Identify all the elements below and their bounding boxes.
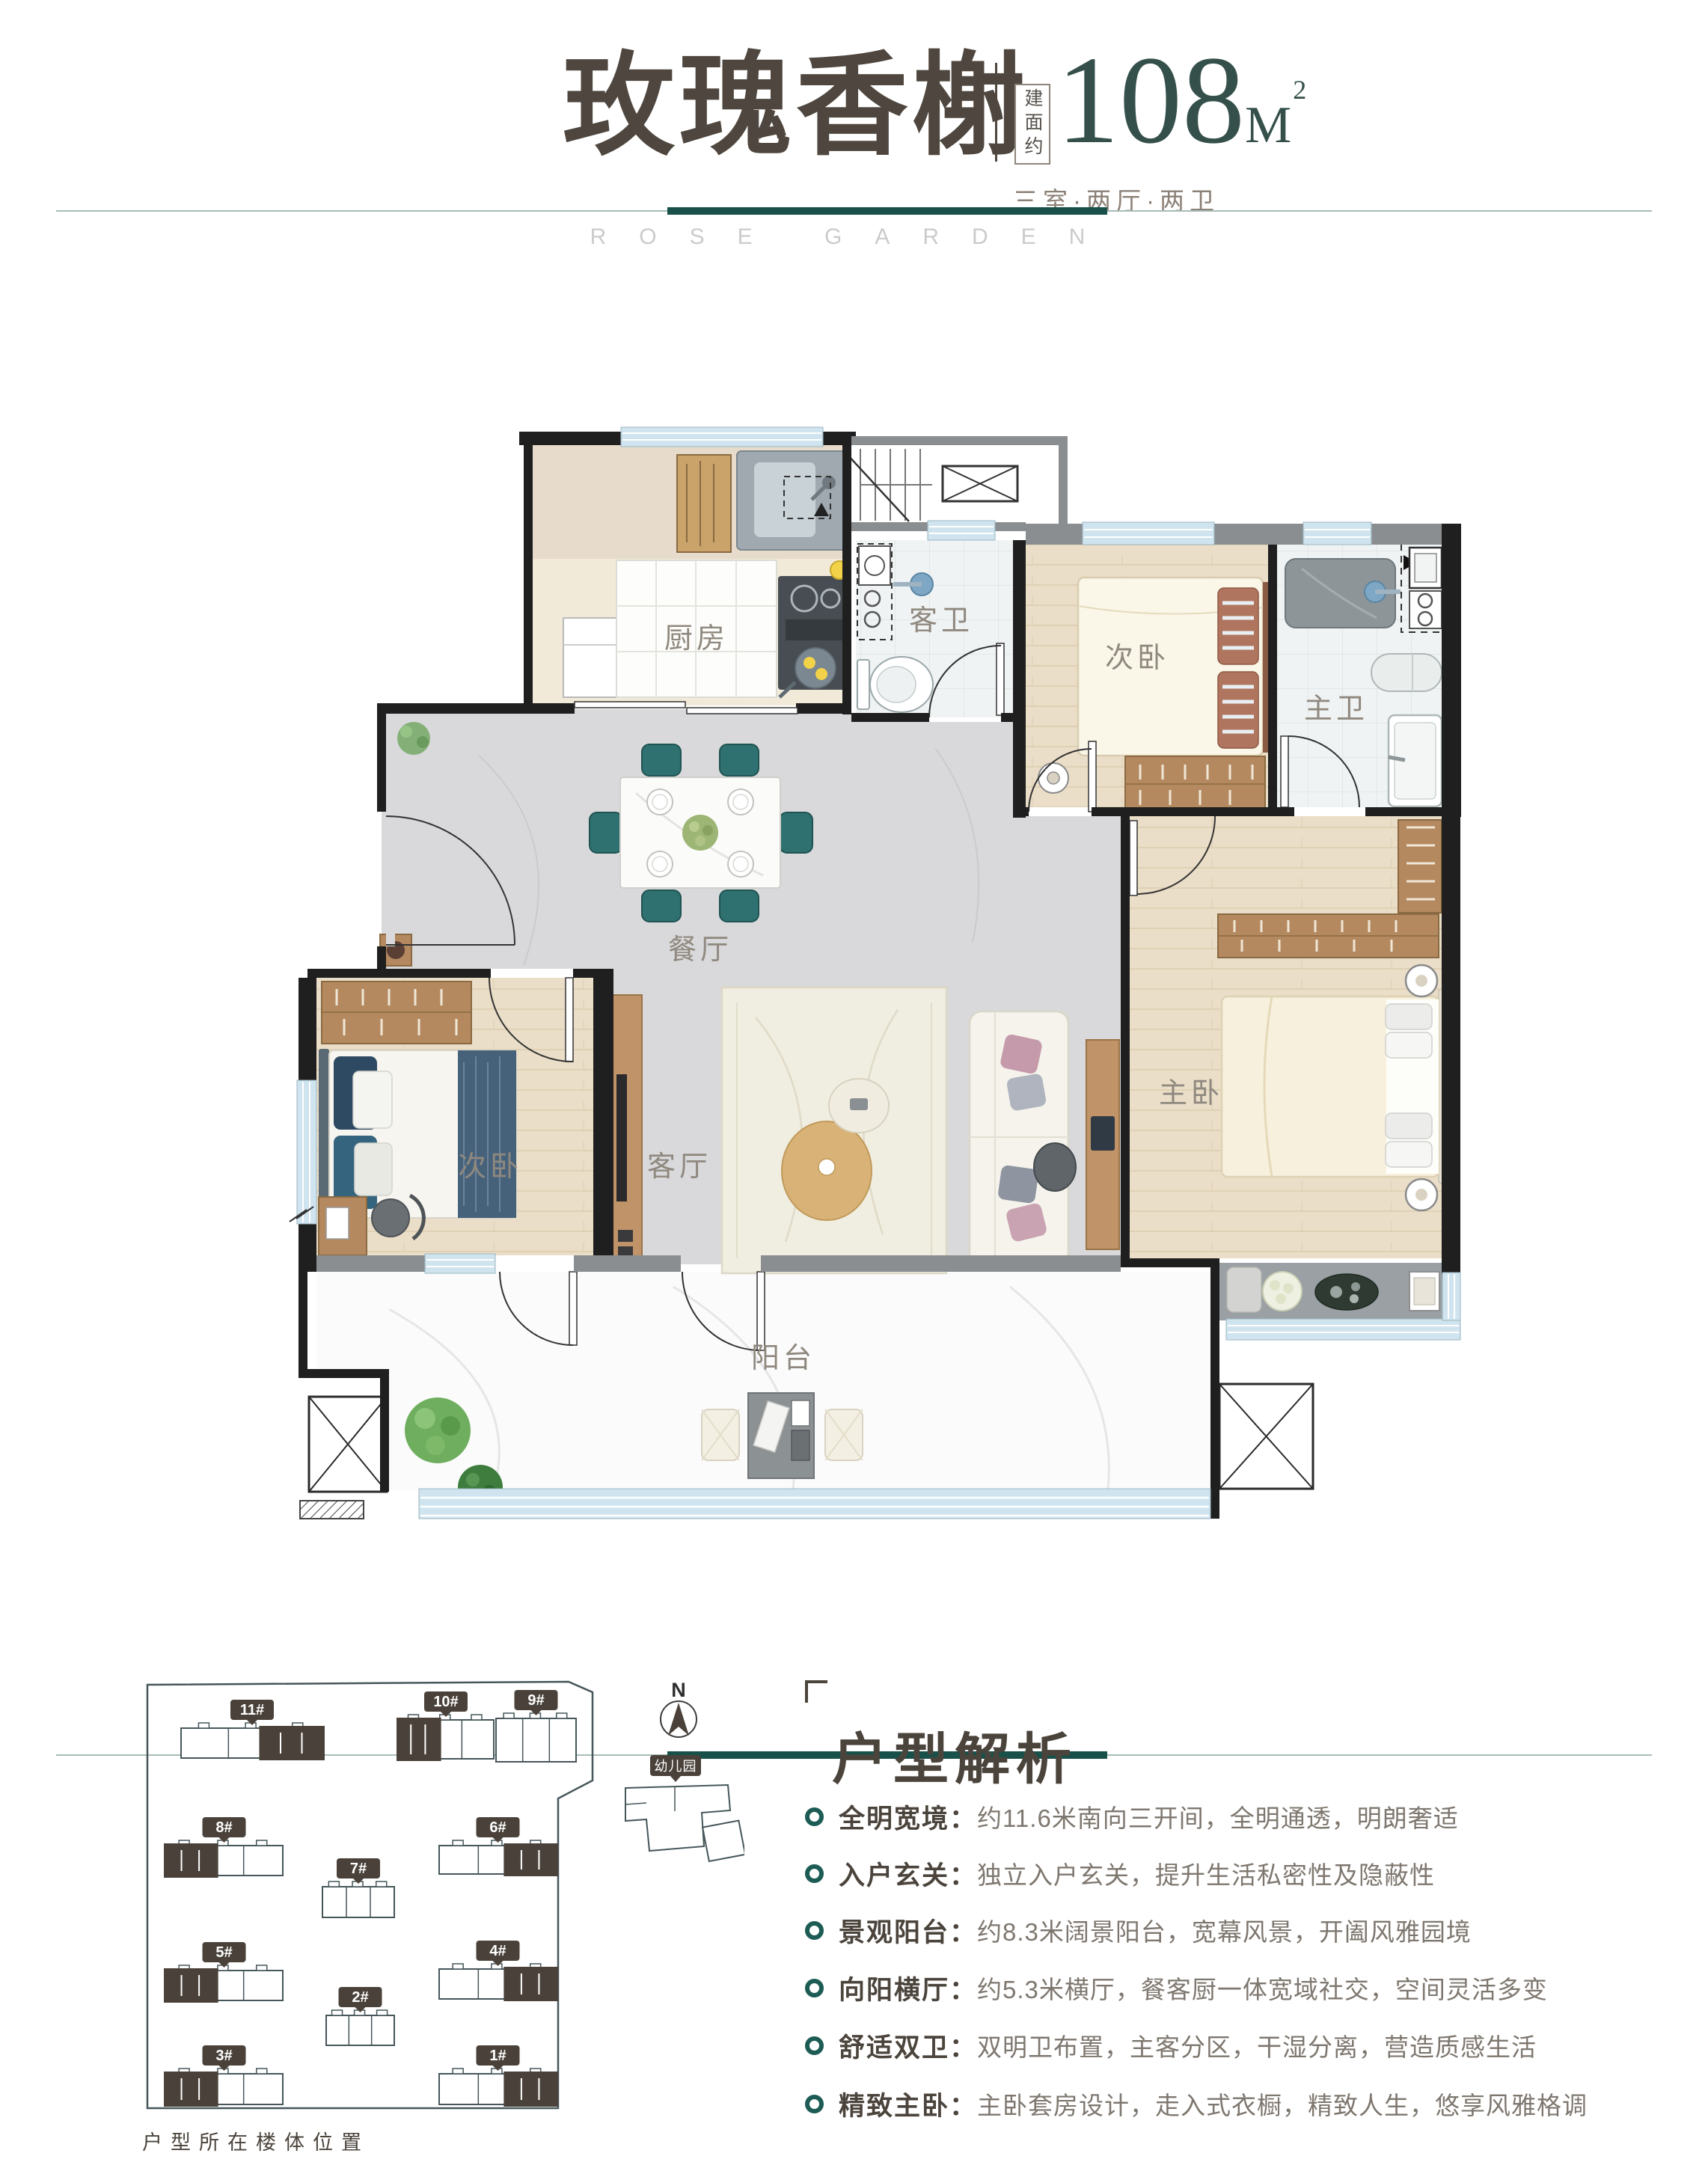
label-bedroom-top: 次卧 — [1105, 643, 1169, 674]
analysis-item-label: 向阳横厅： — [839, 1969, 977, 2007]
building-label: 9# — [527, 1692, 544, 1709]
building-7#: 7# — [322, 1858, 394, 1917]
analysis-item-6: 精致主卧：主卧套房设计，走入式衣橱，精致人生，悠享风雅格调 — [805, 2087, 1658, 2120]
building-label: 10# — [433, 1694, 458, 1710]
area-label: 建面约 — [1019, 88, 1046, 160]
bullet-ring-icon — [805, 1979, 824, 1997]
label-living: 客厅 — [647, 1151, 711, 1183]
analysis-item-2: 入户玄关：独立入户玄关，提升生活私密性及隐蔽性 — [805, 1857, 1658, 1890]
building-4#: 4# — [439, 1941, 558, 2001]
building-3#: 3# — [164, 2045, 283, 2107]
label-master-bath: 主卫 — [1304, 693, 1368, 725]
building-label: 4# — [489, 1943, 506, 1959]
building-label: 1# — [489, 2048, 506, 2064]
bullet-ring-icon — [805, 2036, 824, 2055]
analysis-item-desc: 主卧套房设计，走入式衣橱，精致人生，悠享风雅格调 — [977, 2086, 1588, 2122]
bullet-ring-icon — [805, 2095, 824, 2113]
site-buildings: 11#10#9#8#6#7#5#4#2#3#1# — [164, 1690, 576, 2107]
building-11#: 11# — [181, 1700, 325, 1760]
building-label: 8# — [215, 1819, 232, 1836]
svg-text:N: N — [671, 1679, 686, 1701]
analysis-item-desc: 约11.6米南向三开间，全明通透，明朗奢适 — [977, 1798, 1459, 1834]
kindergarten-marker: 幼儿园 — [625, 1755, 744, 1861]
analysis-heading: 户型解析 — [832, 1715, 1077, 1795]
building-label: 11# — [240, 1702, 264, 1718]
site-plan-caption: 户型所在楼体位置 — [142, 2126, 370, 2155]
building-10#: 10# — [397, 1691, 494, 1761]
analysis-item-desc: 约5.3米横厅，餐客厨一体宽域社交，空间灵活多变 — [977, 1970, 1548, 2006]
building-label: 2# — [352, 1989, 368, 2006]
building-5#: 5# — [164, 1942, 283, 2003]
north-compass-icon: N — [661, 1679, 697, 1737]
building-label: 7# — [350, 1861, 367, 1877]
label-master-bedroom: 主卧 — [1159, 1078, 1223, 1109]
label-bedroom-left: 次卧 — [458, 1151, 522, 1183]
building-1#: 1# — [439, 2045, 558, 2107]
heading-corner-mark — [805, 1680, 827, 1703]
analysis-item-desc: 约8.3米阔景阳台，宽幕风景，开阖风雅园境 — [977, 1912, 1472, 1948]
analysis-item-label: 全明宽境： — [839, 1798, 977, 1836]
page-title: 玫瑰香榭 — [563, 43, 1029, 171]
analysis-item-desc: 独立入户玄关，提升生活私密性及隐蔽性 — [977, 1855, 1435, 1891]
subtitle-english: ROSE GARDEN — [0, 224, 1708, 250]
analysis-item-desc: 双明卫布置，主客分区，干湿分离，营造质感生活 — [977, 2027, 1537, 2063]
building-label: 6# — [489, 1819, 506, 1836]
label-kitchen: 厨房 — [664, 623, 729, 655]
top-divider — [56, 210, 1652, 212]
building-label: 3# — [215, 2048, 232, 2064]
analysis-item-3: 景观阳台：约8.3米阔景阳台，宽幕风景，开阖风雅园境 — [805, 1914, 1658, 1947]
brochure-page: { "header": { "title": "玫瑰香榭", "area_box… — [0, 0, 1708, 2177]
analysis-item-label: 精致主卧： — [839, 2085, 977, 2123]
building-9#: 9# — [496, 1690, 576, 1762]
building-6#: 6# — [439, 1817, 558, 1876]
label-guest-bath: 客卫 — [909, 605, 973, 637]
building-2#: 2# — [326, 1987, 394, 2045]
top-divider-accent — [667, 207, 1107, 215]
bullet-ring-icon — [805, 1921, 824, 1940]
label-balcony: 阳台 — [751, 1343, 815, 1374]
bullet-ring-icon — [805, 1864, 824, 1883]
svg-text:幼儿园: 幼儿园 — [655, 1759, 697, 1774]
bullet-ring-icon — [805, 1807, 824, 1826]
analysis-item-5: 舒适双卫：双明卫布置，主客分区，干湿分离，营造质感生活 — [805, 2029, 1658, 2062]
floor-plan: 厨房 餐厅 客卫 次卧 主卫 次卧 客厅 主卧 阳台 — [284, 423, 1481, 1537]
building-8#: 8# — [164, 1817, 283, 1878]
building-label: 5# — [215, 1944, 232, 1961]
analysis-item-label: 入户玄关： — [839, 1855, 977, 1893]
analysis-item-label: 景观阳台： — [839, 1911, 977, 1950]
area-value: 108M2 — [1056, 37, 1306, 163]
label-dining: 餐厅 — [668, 934, 732, 966]
analysis-item-1: 全明宽境：约11.6米南向三开间，全明通透，明朗奢适 — [805, 1800, 1658, 1833]
area-label-box: 建面约 — [1014, 84, 1050, 165]
analysis-item-label: 舒适双卫： — [839, 2027, 977, 2065]
site-plan: 11#10#9#8#6#7#5#4#2#3#1# N 幼儿园 — [138, 1676, 744, 2162]
title-divider — [995, 63, 997, 162]
analysis-item-4: 向阳横厅：约5.3米横厅，餐客厨一体宽域社交，空间灵活多变 — [805, 1971, 1658, 2004]
